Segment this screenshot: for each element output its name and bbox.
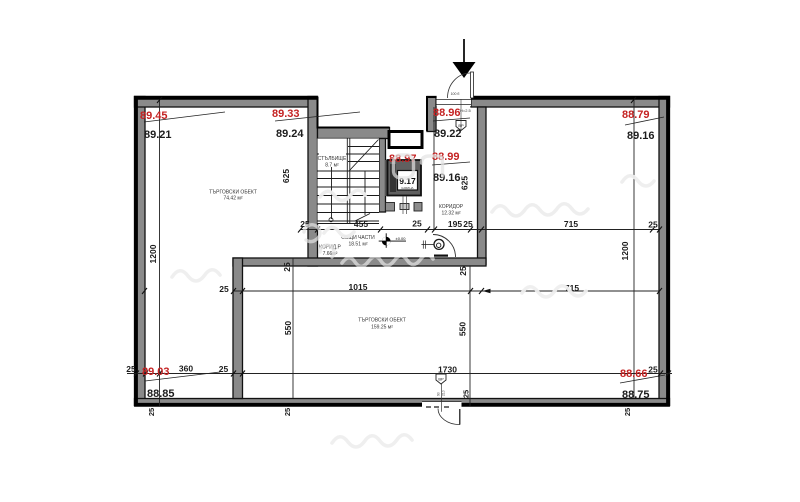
svg-text:88.96: 88.96	[433, 107, 461, 119]
svg-text:25: 25	[623, 408, 632, 416]
svg-text:360: 360	[179, 364, 193, 374]
svg-text:25: 25	[463, 219, 473, 229]
svg-text:89.21: 89.21	[144, 129, 172, 141]
svg-text:1015: 1015	[349, 282, 368, 292]
svg-text:89.03: 89.03	[142, 366, 170, 378]
svg-text:455: 455	[354, 219, 368, 229]
svg-text:25: 25	[458, 266, 468, 276]
svg-text:12.32 м²: 12.32 м²	[441, 211, 460, 217]
svg-text:550: 550	[283, 321, 293, 335]
svg-text:88.85: 88.85	[147, 388, 175, 400]
svg-text:КАБИНА: КАБИНА	[401, 186, 413, 190]
svg-text:159.25 м²: 159.25 м²	[371, 325, 393, 331]
svg-text:КОРИДОР: КОРИДОР	[439, 204, 464, 210]
svg-text:Н=2.5: Н=2.5	[460, 108, 472, 113]
svg-text:1200: 1200	[620, 241, 630, 260]
svg-text:25: 25	[412, 219, 422, 229]
svg-text:88.66: 88.66	[620, 368, 648, 380]
svg-text:1730: 1730	[438, 365, 457, 375]
svg-text:25: 25	[648, 365, 658, 375]
svg-text:25: 25	[648, 220, 658, 230]
svg-text:89.16: 89.16	[433, 172, 461, 184]
svg-text:ВР: ВР	[438, 377, 444, 382]
svg-text:ТЪРГОВСКИ ОБЕКТ: ТЪРГОВСКИ ОБЕКТ	[358, 318, 406, 324]
svg-text:100 б: 100 б	[451, 92, 460, 96]
svg-text:СТЪЛБИЩЕ: СТЪЛБИЩЕ	[318, 156, 347, 162]
svg-text:88.75: 88.75	[622, 389, 650, 401]
svg-text:25: 25	[282, 262, 292, 272]
svg-text:625: 625	[281, 169, 291, 183]
svg-text:89.16: 89.16	[627, 130, 655, 142]
svg-text:74.42 м²: 74.42 м²	[223, 196, 242, 202]
svg-text:89.33: 89.33	[272, 108, 300, 120]
svg-text:550: 550	[458, 322, 468, 336]
svg-text:88.79: 88.79	[622, 109, 650, 121]
svg-text:25: 25	[219, 364, 229, 374]
svg-text:8.7 м²: 8.7 м²	[325, 163, 339, 169]
svg-text:89.22: 89.22	[434, 128, 462, 140]
svg-text:89.45: 89.45	[140, 110, 168, 122]
svg-text:210: 210	[442, 390, 446, 396]
svg-text:625: 625	[460, 176, 470, 190]
svg-text:25: 25	[219, 284, 229, 294]
svg-text:195: 195	[448, 219, 462, 229]
svg-text:1200: 1200	[148, 244, 158, 263]
svg-text:±0.00: ±0.00	[396, 236, 407, 241]
svg-text:25: 25	[147, 408, 156, 416]
svg-text:25: 25	[126, 364, 136, 374]
svg-text:25: 25	[462, 390, 471, 398]
svg-text:90: 90	[437, 392, 441, 396]
svg-text:715: 715	[564, 219, 578, 229]
svg-text:18.51 м²: 18.51 м²	[348, 242, 367, 248]
svg-text:25: 25	[283, 408, 292, 416]
svg-text:89.24: 89.24	[276, 128, 304, 140]
